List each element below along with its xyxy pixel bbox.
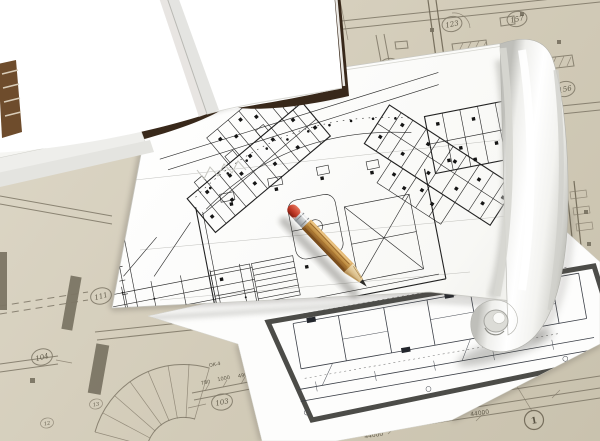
blueprint-scene: 123 157 124 156 111 104 103 13 12 1 4400… [0,0,600,441]
